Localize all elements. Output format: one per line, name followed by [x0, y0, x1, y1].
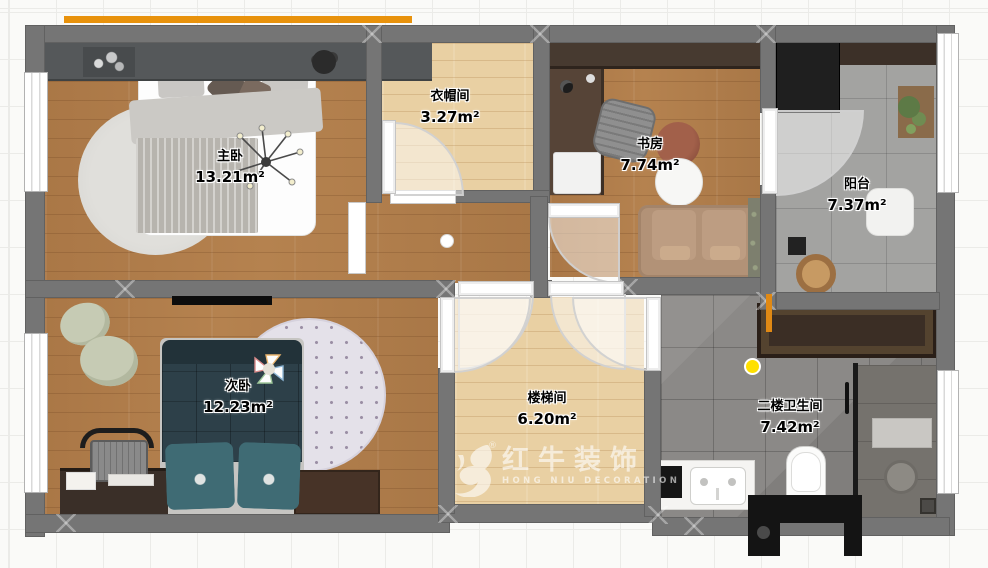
study-cup — [586, 74, 595, 83]
window-balcony-right — [937, 33, 959, 193]
watermark-registered-mark: ® — [488, 441, 497, 451]
wall-joint — [756, 25, 776, 43]
study-top-shelf — [550, 43, 760, 69]
watermark-brand: 红牛装饰 — [502, 447, 680, 474]
study-sofa-pillow-right — [710, 246, 740, 260]
wall-joint — [436, 280, 456, 298]
shower-drain — [920, 498, 936, 514]
room-name: 二楼卫生间 — [757, 400, 822, 413]
watermark: 红牛装饰 HONG NIU DECORATION — [448, 441, 680, 497]
watermark-text: 红牛装饰 HONG NIU DECORATION — [502, 441, 680, 486]
second-bed-pillow-left — [165, 442, 235, 510]
wall-joint — [438, 505, 458, 523]
study-laptop — [553, 152, 601, 194]
wall-cloakroom-right — [533, 25, 550, 203]
wall-joint — [56, 514, 76, 532]
room-name: 主卧 — [217, 150, 243, 163]
room-label-study: 书房 7.74m² — [598, 138, 702, 173]
toilet-seat — [791, 452, 821, 492]
wall-joint — [684, 517, 704, 535]
wall-top — [25, 25, 955, 43]
balcony-rattan-seat — [796, 254, 836, 294]
bathroom-wardrobe — [757, 303, 937, 358]
room-area: 7.74m² — [620, 158, 679, 173]
second-bedroom-chair-back — [80, 428, 154, 448]
stairwell-door-top-right-leaf — [548, 281, 624, 296]
wall-joint — [648, 506, 668, 524]
corridor-door-leaf — [548, 203, 620, 218]
room-area: 12.23m² — [203, 400, 273, 415]
wall-bottom-left — [25, 514, 450, 533]
corridor-ceiling-light — [440, 234, 454, 248]
balcony-small-black-box — [788, 237, 806, 255]
room-name: 次卧 — [225, 380, 251, 393]
window-master-left — [24, 72, 48, 192]
room-label-cloakroom: 衣帽间 3.27m² — [398, 90, 502, 125]
room-name: 书房 — [637, 138, 663, 151]
balcony-plant — [898, 96, 920, 118]
second-bedroom-tv — [172, 296, 272, 305]
room-area: 7.42m² — [760, 420, 819, 435]
wall-joint — [362, 25, 382, 43]
balcony-top-shelf — [838, 43, 936, 65]
stairwell-door-top-left-leaf — [458, 281, 534, 296]
balcony-black-cabinet — [776, 33, 840, 113]
outside-vanity-knob — [757, 526, 770, 539]
wall-joint — [530, 25, 550, 43]
desk-tray — [108, 474, 154, 486]
room-label-balcony: 阳台 7.37m² — [812, 178, 902, 213]
second-bed-pillow-right — [237, 442, 301, 510]
desk-papers — [66, 472, 96, 490]
room-area: 13.21m² — [195, 170, 265, 185]
shower-stool — [884, 460, 918, 494]
stairwell-door-right-leaf — [646, 297, 661, 371]
room-label-master-bedroom: 主卧 13.21m² — [178, 150, 282, 185]
sink-knob-left — [700, 478, 708, 486]
room-label-stairwell: 楼梯间 6.20m² — [492, 392, 602, 427]
room-label-bathroom-2f: 二楼卫生间 7.42m² — [728, 400, 852, 435]
bedside-plant-icon — [312, 50, 336, 74]
accent-orange-strip-vertical — [766, 294, 772, 332]
stairwell-door-left-leaf — [440, 297, 455, 373]
room-name: 楼梯间 — [527, 392, 566, 405]
outside-vanity-right-leg — [844, 520, 862, 556]
room-name: 阳台 — [844, 178, 870, 191]
highlight-yellow-dot — [744, 358, 761, 375]
wall-study-bottom — [618, 277, 776, 295]
study-wall-grass-decor — [748, 198, 760, 280]
room-area: 7.37m² — [827, 198, 886, 213]
accent-orange-strip-top — [64, 16, 412, 23]
window-bathroom-right — [937, 370, 959, 494]
wall-joint — [115, 280, 135, 298]
second-bedroom-cabinet — [294, 470, 380, 515]
cloakroom-door-leaf — [382, 120, 396, 194]
watermark-subtitle: HONG NIU DECORATION — [502, 476, 680, 486]
study-sofa-pillow-left — [660, 246, 690, 260]
balcony-door-leaf — [762, 108, 778, 194]
window-second-bedroom-left — [24, 333, 48, 493]
room-label-second-bedroom: 次卧 12.23m² — [186, 380, 290, 415]
sink-knob-right — [728, 478, 736, 486]
room-area: 6.20m² — [517, 412, 576, 427]
wall-bottom-middle — [438, 504, 660, 523]
wall-balcony-bottom — [776, 292, 940, 310]
room-name: 衣帽间 — [430, 90, 469, 103]
sink-drain-slot — [716, 488, 719, 500]
study-desk-lamp — [560, 80, 573, 93]
room-area: 3.27m² — [420, 110, 479, 125]
corridor-bench-vertical — [348, 202, 366, 274]
floorplan-canvas: 主卧 13.21m² 衣帽间 3.27m² 书房 7.74m² 阳台 7.37m… — [0, 0, 988, 568]
shower-mat — [872, 418, 932, 448]
outside-vanity-top — [748, 495, 862, 523]
wall-cloakroom-left — [366, 25, 382, 203]
wall-art-plant — [83, 47, 135, 77]
